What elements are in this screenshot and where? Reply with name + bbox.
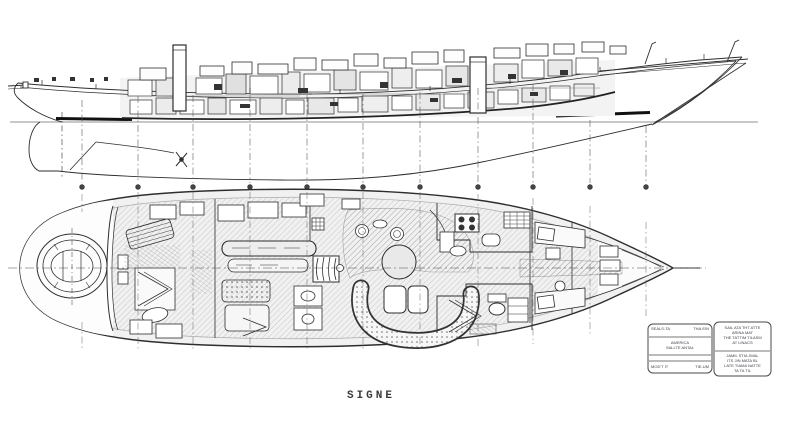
berth bbox=[225, 305, 269, 331]
side-elevation-view bbox=[8, 40, 758, 180]
stern-fittings bbox=[8, 77, 108, 89]
keel-bottom bbox=[58, 124, 652, 180]
saloon-table bbox=[408, 286, 428, 313]
blueprint-canvas: SIGNE SEALS-TA THA.EIN AMERICA SALLTE AN… bbox=[0, 0, 800, 421]
fore-basin bbox=[555, 281, 565, 291]
bobstay bbox=[653, 63, 746, 124]
stool bbox=[356, 225, 369, 238]
mizzen-mast bbox=[173, 45, 186, 111]
saloon-round-table bbox=[382, 245, 416, 279]
galley-stove bbox=[455, 214, 479, 232]
washbasin bbox=[302, 314, 314, 324]
title-block-ref: THA.EIN bbox=[693, 326, 709, 331]
generator bbox=[222, 241, 316, 256]
station-markers bbox=[80, 185, 649, 190]
forestay-stub-2 bbox=[727, 40, 739, 62]
toilet bbox=[489, 303, 505, 315]
rudder bbox=[29, 122, 58, 171]
aft-double-berth bbox=[135, 268, 175, 310]
title-block-row2: AMERICA SALLTE ANTAL bbox=[651, 340, 709, 350]
stool bbox=[391, 228, 404, 241]
title-block-right-lower: JAMIL STIA JMAL ITS JIN MATA BL LATE TIA… bbox=[716, 353, 769, 373]
engine-block bbox=[228, 259, 308, 272]
berth bbox=[222, 280, 270, 302]
toilet bbox=[301, 291, 315, 301]
title-block-scale: SEALS-TA bbox=[651, 326, 670, 331]
yacht-drawing bbox=[0, 0, 800, 421]
plan-view bbox=[8, 189, 706, 350]
galley-sink bbox=[450, 246, 466, 256]
title-block-right-upper: SAIL ATA THT ATTE ARINA MAT THE TATTIM T… bbox=[716, 325, 769, 345]
forestay-stub-1 bbox=[645, 42, 656, 64]
title-block-row3: MOD'T IT TIE-UM bbox=[651, 364, 709, 369]
vessel-name-label: SIGNE bbox=[336, 390, 406, 402]
saloon-table bbox=[384, 286, 406, 313]
title-block-row1: SEALS-TA THA.EIN bbox=[651, 326, 709, 331]
propeller-icon bbox=[176, 152, 187, 167]
